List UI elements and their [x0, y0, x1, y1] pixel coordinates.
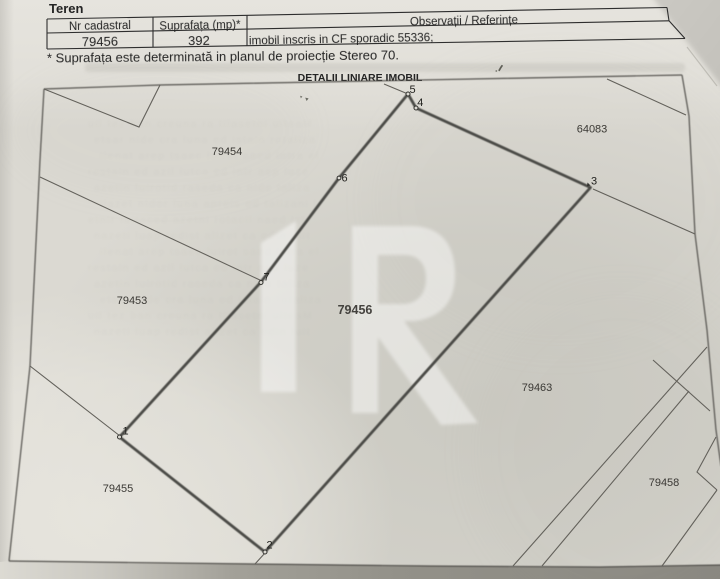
svg-text:79453: 79453 — [117, 295, 148, 307]
svg-text:79458: 79458 — [649, 477, 680, 489]
svg-text:4: 4 — [417, 97, 423, 109]
svg-text:3: 3 — [591, 176, 597, 188]
svg-text:Observații / Referințe: Observații / Referințe — [410, 15, 518, 29]
svg-text:1: 1 — [123, 426, 129, 438]
svg-text:6: 6 — [342, 173, 348, 185]
svg-text:etsar nide cra luna ed istain: etsar nide cra luna ed istain rotaliza — [94, 134, 316, 146]
svg-text:79456: 79456 — [338, 303, 373, 317]
svg-text:Nr cadastral: Nr cadastral — [69, 20, 131, 33]
svg-text:ilenat arep tsaec luiret saed: ilenat arep tsaec luiret saed intra el — [100, 150, 320, 162]
svg-text:64083: 64083 — [577, 124, 608, 136]
svg-text:79455: 79455 — [103, 483, 134, 495]
svg-text:restain ed azil lutca ed intr: restain ed azil lutca ed intr aep luze — [88, 166, 310, 178]
svg-text:azetin luirotid raseda ca nide: azetin luirotid raseda ca nide taliza — [94, 182, 311, 194]
svg-text:Teren: Teren — [49, 1, 83, 16]
svg-text:etnir luitaced azetni rotacil: etnir luitaced azetni rotacil naed izt — [88, 214, 306, 226]
svg-text:5: 5 — [410, 84, 416, 96]
svg-text:79463: 79463 — [522, 382, 553, 394]
svg-text:ilazet nider luna apreis ed ta: ilazet nider luna apreis ed talizani l — [100, 198, 318, 210]
svg-text:2: 2 — [267, 539, 273, 551]
svg-text:392: 392 — [188, 33, 210, 48]
svg-text:79454: 79454 — [212, 146, 243, 158]
svg-text:Suprafața (mp)*: Suprafața (mp)* — [159, 19, 241, 33]
svg-text:79456: 79456 — [82, 33, 118, 49]
svg-text:7: 7 — [264, 272, 270, 284]
svg-text:* Suprafața este determinată i: * Suprafața este determinată in planul d… — [47, 47, 399, 65]
